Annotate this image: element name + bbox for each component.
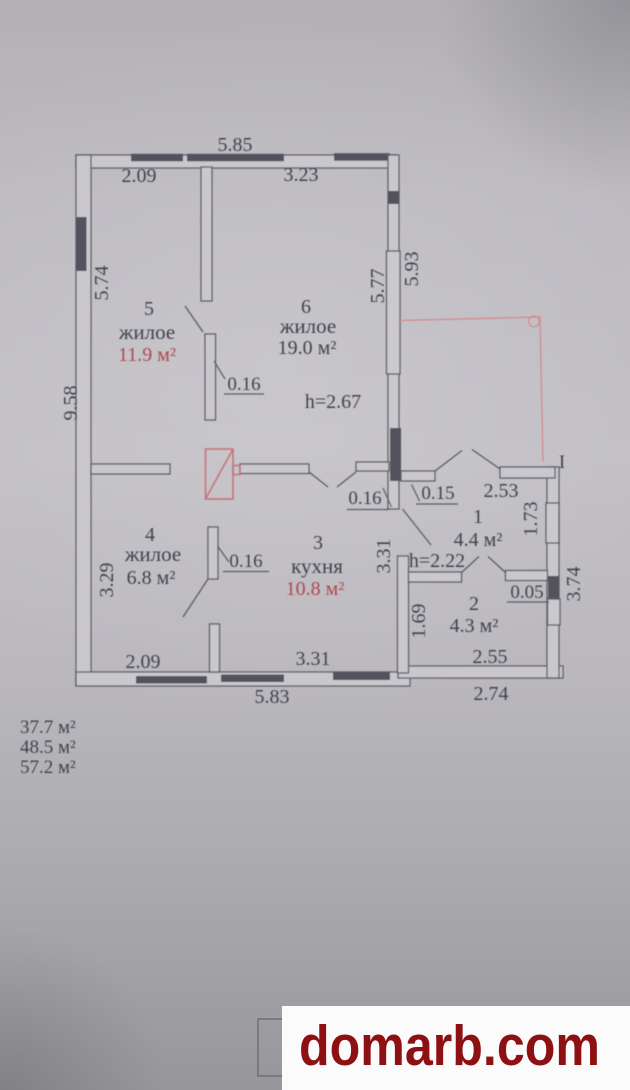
svg-text:19.0 м²: 19.0 м² <box>278 337 337 359</box>
svg-text:жилое: жилое <box>124 542 181 566</box>
svg-text:3: 3 <box>313 532 323 554</box>
svg-text:0.16: 0.16 <box>227 374 260 395</box>
svg-text:2.09: 2.09 <box>126 651 161 673</box>
svg-text:9.58: 9.58 <box>60 386 82 421</box>
svg-text:5.74: 5.74 <box>91 266 113 301</box>
svg-text:0.16: 0.16 <box>229 551 262 572</box>
svg-text:5.83: 5.83 <box>255 686 290 708</box>
svg-text:h=2.22: h=2.22 <box>409 550 465 572</box>
svg-text:5: 5 <box>144 298 154 320</box>
svg-text:жилое: жилое <box>118 320 175 344</box>
svg-text:1.73: 1.73 <box>520 502 542 537</box>
svg-text:11.9 м²: 11.9 м² <box>118 344 176 366</box>
svg-text:3.31: 3.31 <box>296 648 331 670</box>
svg-text:57.2 м²: 57.2 м² <box>20 757 76 778</box>
svg-text:6.8 м²: 6.8 м² <box>127 567 176 589</box>
svg-text:5.85: 5.85 <box>218 134 253 156</box>
svg-text:4.3 м²: 4.3 м² <box>450 615 499 637</box>
svg-text:1.69: 1.69 <box>408 604 430 639</box>
svg-text:1: 1 <box>473 506 483 528</box>
svg-text:5.93: 5.93 <box>401 252 423 287</box>
svg-text:4.4 м²: 4.4 м² <box>454 529 503 551</box>
svg-text:10.8 м²: 10.8 м² <box>286 578 345 600</box>
svg-text:2.09: 2.09 <box>122 165 157 187</box>
svg-text:3.29: 3.29 <box>96 563 118 598</box>
svg-text:2.74: 2.74 <box>474 683 509 705</box>
svg-text:кухня: кухня <box>291 554 343 578</box>
svg-text:5.77: 5.77 <box>367 269 389 304</box>
svg-text:0.16: 0.16 <box>348 488 381 509</box>
svg-text:h=2.67: h=2.67 <box>305 391 361 413</box>
svg-text:I: I <box>559 452 565 473</box>
svg-text:2.55: 2.55 <box>473 646 508 668</box>
svg-text:0.05: 0.05 <box>510 582 543 603</box>
svg-text:жилое: жилое <box>279 314 336 338</box>
svg-text:0.15: 0.15 <box>421 483 454 504</box>
svg-text:3.74: 3.74 <box>563 567 585 602</box>
svg-text:2.53: 2.53 <box>484 480 519 502</box>
svg-text:domarb.com: domarb.com <box>299 1014 600 1078</box>
svg-text:37.7 м²: 37.7 м² <box>20 717 76 738</box>
svg-text:3.31: 3.31 <box>373 539 395 574</box>
svg-text:48.5 м²: 48.5 м² <box>20 737 76 758</box>
svg-text:2: 2 <box>469 593 479 615</box>
svg-text:3.23: 3.23 <box>284 164 319 186</box>
